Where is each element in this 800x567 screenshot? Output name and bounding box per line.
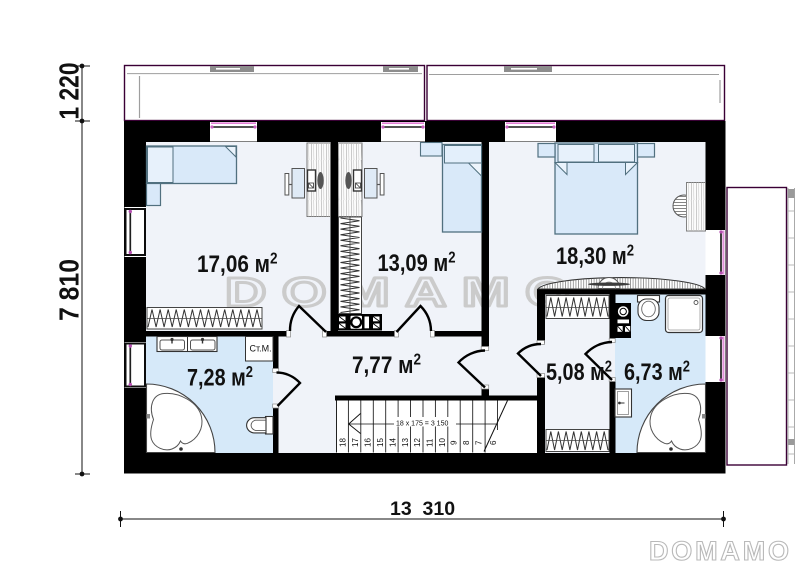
svg-text:7,77 м2: 7,77 м2 xyxy=(352,352,421,380)
svg-text:16: 16 xyxy=(364,438,373,447)
svg-text:9: 9 xyxy=(450,440,459,445)
svg-text:8: 8 xyxy=(462,440,471,445)
svg-text:10: 10 xyxy=(438,438,447,447)
svg-text:1 220: 1 220 xyxy=(54,63,85,120)
svg-text:13: 13 xyxy=(401,438,410,447)
svg-text:5,08 м2: 5,08 м2 xyxy=(546,359,612,387)
svg-text:11: 11 xyxy=(426,438,435,447)
svg-text:6: 6 xyxy=(489,440,498,445)
svg-text:7: 7 xyxy=(474,440,483,445)
svg-text:18: 18 xyxy=(339,438,348,447)
svg-text:Ст.М.: Ст.М. xyxy=(250,344,272,354)
svg-text:13 310: 13 310 xyxy=(390,498,455,520)
svg-text:18 х 175 = 3 150: 18 х 175 = 3 150 xyxy=(396,421,448,428)
svg-text:12: 12 xyxy=(413,438,422,447)
svg-text:DOMAMO: DOMAMO xyxy=(649,536,792,566)
svg-text:17: 17 xyxy=(351,438,360,447)
svg-text:18,30 м2: 18,30 м2 xyxy=(556,243,634,271)
svg-text:13,09 м2: 13,09 м2 xyxy=(378,250,456,278)
svg-text:6,73 м2: 6,73 м2 xyxy=(624,359,690,387)
svg-text:14: 14 xyxy=(388,438,397,447)
svg-text:7 810: 7 810 xyxy=(54,259,85,321)
svg-text:15: 15 xyxy=(376,438,385,447)
svg-text:17,06 м2: 17,06 м2 xyxy=(197,251,278,279)
svg-text:7,28 м2: 7,28 м2 xyxy=(187,364,253,392)
